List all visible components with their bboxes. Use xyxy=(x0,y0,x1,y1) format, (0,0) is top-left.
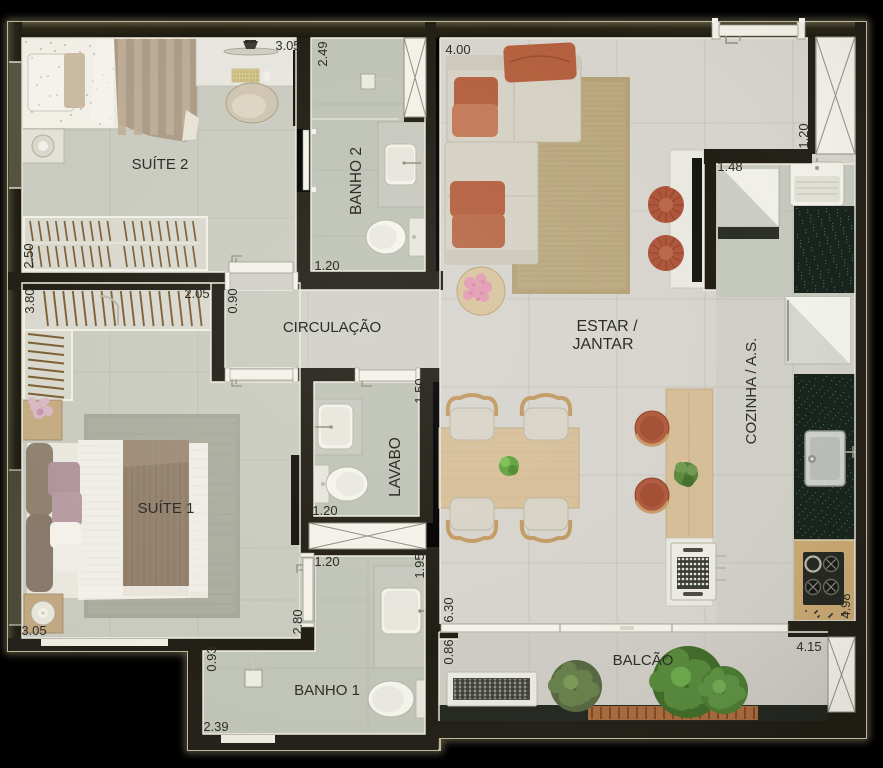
svg-text:LAVABO: LAVABO xyxy=(387,437,404,497)
svg-text:2.50: 2.50 xyxy=(21,243,36,268)
svg-text:3.05: 3.05 xyxy=(275,38,300,53)
svg-text:2.80: 2.80 xyxy=(290,609,305,634)
svg-text:0.86: 0.86 xyxy=(441,639,456,664)
svg-text:ESTAR /: ESTAR / xyxy=(576,318,638,335)
svg-text:1.48: 1.48 xyxy=(717,159,742,174)
svg-text:6.30: 6.30 xyxy=(441,597,456,622)
svg-text:1.50: 1.50 xyxy=(412,378,427,403)
svg-text:COZINHA / A.S.: COZINHA / A.S. xyxy=(743,338,760,445)
svg-text:0.90: 0.90 xyxy=(225,288,240,313)
svg-text:1.20: 1.20 xyxy=(314,554,339,569)
svg-text:4.00: 4.00 xyxy=(445,42,470,57)
svg-text:3.05: 3.05 xyxy=(21,623,46,638)
svg-text:2.49: 2.49 xyxy=(315,41,330,66)
svg-text:SUÍTE 2: SUÍTE 2 xyxy=(132,156,189,173)
svg-text:BALCÃO: BALCÃO xyxy=(613,652,674,669)
svg-text:BANHO 1: BANHO 1 xyxy=(294,682,360,699)
svg-text:BANHO 2: BANHO 2 xyxy=(348,147,365,215)
svg-text:2.05: 2.05 xyxy=(184,286,209,301)
svg-text:1.20: 1.20 xyxy=(796,123,811,148)
svg-text:JANTAR: JANTAR xyxy=(572,336,633,353)
svg-text:SUÍTE 1: SUÍTE 1 xyxy=(138,500,195,517)
svg-text:4.15: 4.15 xyxy=(796,639,821,654)
svg-text:1.95: 1.95 xyxy=(412,553,427,578)
svg-text:1.20: 1.20 xyxy=(314,258,339,273)
svg-text:2.39: 2.39 xyxy=(203,719,228,734)
svg-text:0.93: 0.93 xyxy=(204,646,219,671)
svg-text:CIRCULAÇÃO: CIRCULAÇÃO xyxy=(283,319,381,336)
svg-text:4.98: 4.98 xyxy=(838,593,853,618)
svg-text:3.80: 3.80 xyxy=(22,288,37,313)
svg-text:1.20: 1.20 xyxy=(312,503,337,518)
